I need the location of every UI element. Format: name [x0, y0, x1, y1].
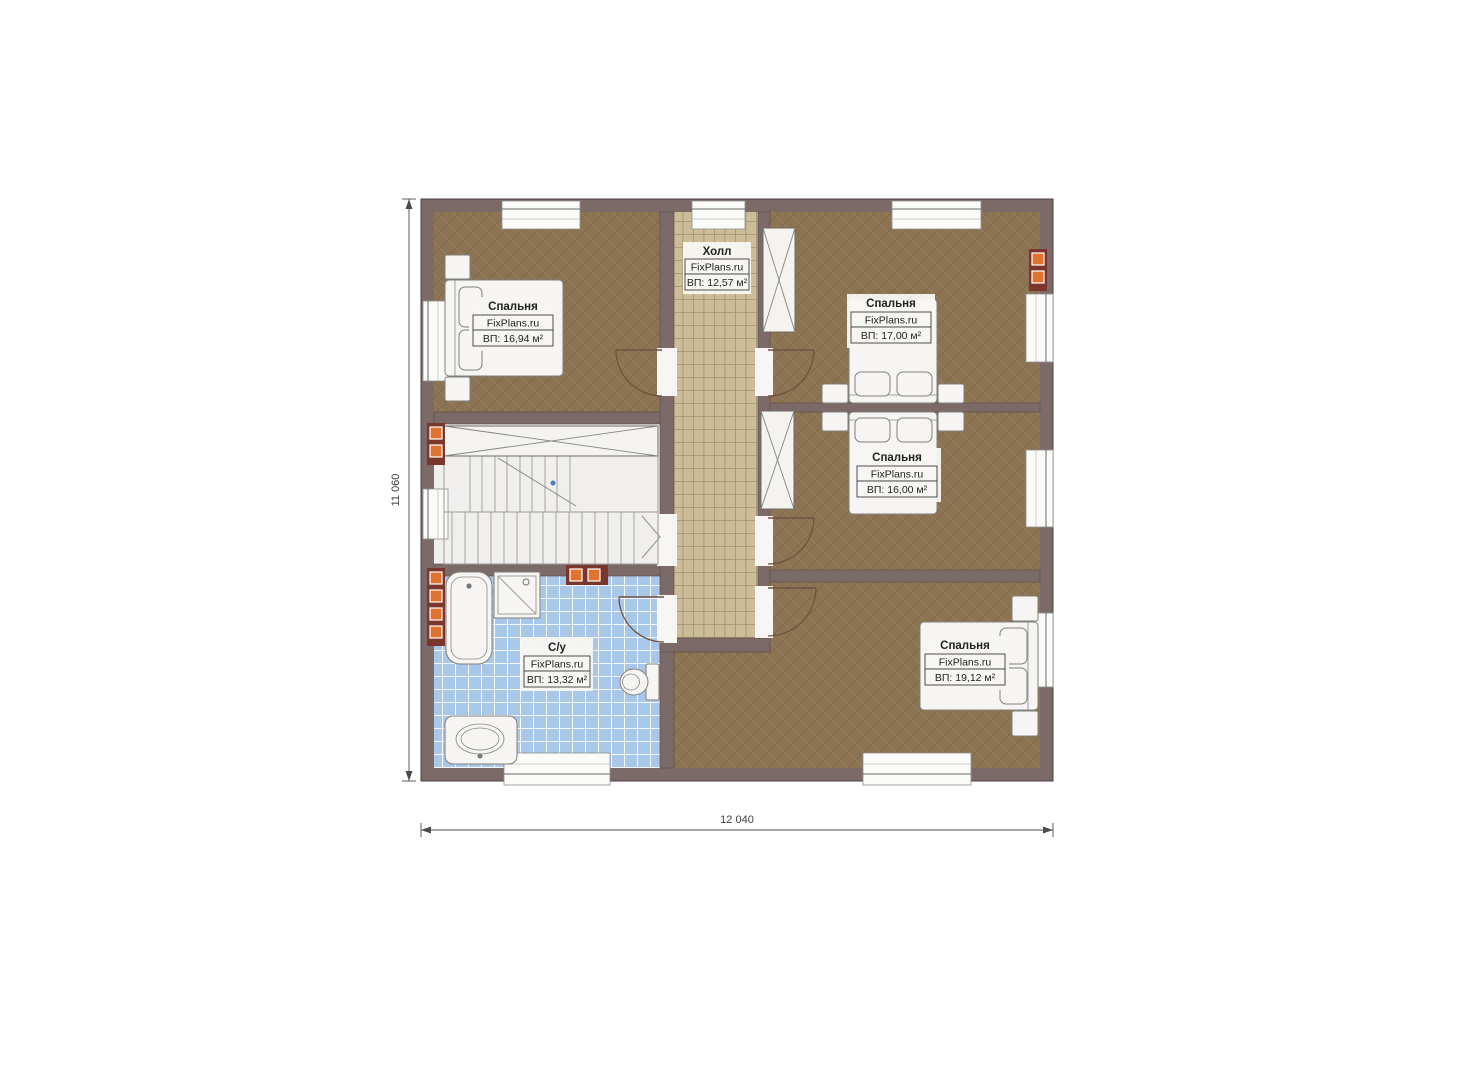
nightstand	[1012, 711, 1038, 736]
room-brand: FixPlans.ru	[487, 318, 540, 330]
room-label-bedroom-middle-right: Спальня FixPlans.ru ВП: 16,00 м²	[853, 448, 941, 502]
room-area: ВП: 19,12 м²	[935, 672, 996, 684]
nightstand	[822, 384, 848, 403]
room-brand: FixPlans.ru	[691, 262, 744, 274]
pillow	[855, 372, 890, 396]
pillow	[855, 418, 890, 442]
room-brand: FixPlans.ru	[871, 469, 924, 481]
room-label-bedroom-bottom-right: Спальня FixPlans.ru ВП: 19,12 м²	[921, 636, 1009, 690]
window-top-hall	[692, 201, 745, 229]
nightstand	[822, 412, 848, 431]
window-top-bedroom-left	[502, 201, 580, 229]
window-right-bedroom-top	[1026, 294, 1053, 362]
floor-plan-page: Спальня FixPlans.ru ВП: 16,94 м² Холл Fi…	[0, 0, 1474, 1080]
window-bottom-bedroom	[863, 753, 971, 785]
window-top-bedroom-right	[892, 201, 981, 229]
room-area: ВП: 16,00 м²	[867, 484, 928, 496]
room-label-bathroom: С/у FixPlans.ru ВП: 13,32 м²	[521, 638, 593, 691]
window-bottom-bathroom	[504, 753, 610, 785]
pillow	[897, 372, 932, 396]
radiator-right-top	[1029, 249, 1047, 291]
dimension-arrow-icon	[406, 199, 413, 209]
wardrobe-bedroom-top-right	[763, 228, 795, 332]
sink-drain-icon	[478, 754, 483, 759]
room-name: Спальня	[940, 640, 990, 652]
wall-between-right-bedrooms-2	[770, 570, 1040, 582]
stair-break-marker	[550, 480, 556, 486]
room-label-hall: Холл FixPlans.ru ВП: 12,57 м²	[683, 242, 751, 294]
opening-stairs-to-hall	[657, 514, 677, 566]
room-label-bedroom-top-left: Спальня FixPlans.ru ВП: 16,94 м²	[469, 297, 557, 351]
shower	[494, 572, 540, 618]
room-name: Спальня	[872, 452, 922, 464]
room-label-bedroom-top-right: Спальня FixPlans.ru ВП: 17,00 м²	[847, 294, 935, 348]
room-name: Спальня	[488, 301, 538, 313]
room-brand: FixPlans.ru	[865, 315, 918, 327]
nightstand	[445, 377, 470, 401]
dimension-width-label: 12 040	[720, 814, 754, 826]
room-area: ВП: 13,32 м²	[527, 674, 588, 686]
bathtub-faucet-icon	[466, 583, 471, 588]
wardrobe-left	[444, 426, 658, 456]
dimension-height-label: 11 060	[390, 474, 402, 507]
room-brand: FixPlans.ru	[939, 657, 992, 669]
bathtub	[446, 572, 492, 664]
dimension-arrow-icon	[406, 771, 413, 781]
room-area: ВП: 16,94 м²	[483, 333, 544, 345]
room-name: Спальня	[866, 298, 916, 310]
room-area: ВП: 17,00 м²	[861, 330, 922, 342]
window-right-bedroom-middle	[1026, 450, 1053, 527]
nightstand	[938, 384, 964, 403]
floor-plan-svg: Спальня FixPlans.ru ВП: 16,94 м² Холл Fi…	[0, 0, 1474, 1080]
dimension-arrow-icon	[421, 827, 431, 834]
window-left-bedroom	[423, 301, 448, 381]
nightstand	[938, 412, 964, 431]
wall-hall-left	[660, 212, 674, 768]
wardrobe-bedroom-middle-right	[761, 411, 794, 509]
room-name: Холл	[703, 246, 732, 258]
sink	[445, 716, 517, 764]
dimension-bottom: 12 040	[421, 814, 1053, 837]
nightstand	[445, 255, 470, 279]
wall-below-bedroom-top-left	[434, 412, 660, 424]
radiator-left-middle	[427, 423, 445, 465]
pillow	[897, 418, 932, 442]
dimension-left: 11 060	[390, 199, 416, 781]
room-name: С/у	[548, 642, 567, 654]
room-area: ВП: 12,57 м²	[687, 277, 748, 289]
wall-between-right-bedrooms-1	[770, 403, 1040, 412]
nightstand	[1012, 596, 1038, 621]
dimension-arrow-icon	[1043, 827, 1053, 834]
room-brand: FixPlans.ru	[531, 659, 584, 671]
radiator-left-lower	[427, 568, 445, 646]
radiator-bathroom	[566, 565, 608, 585]
